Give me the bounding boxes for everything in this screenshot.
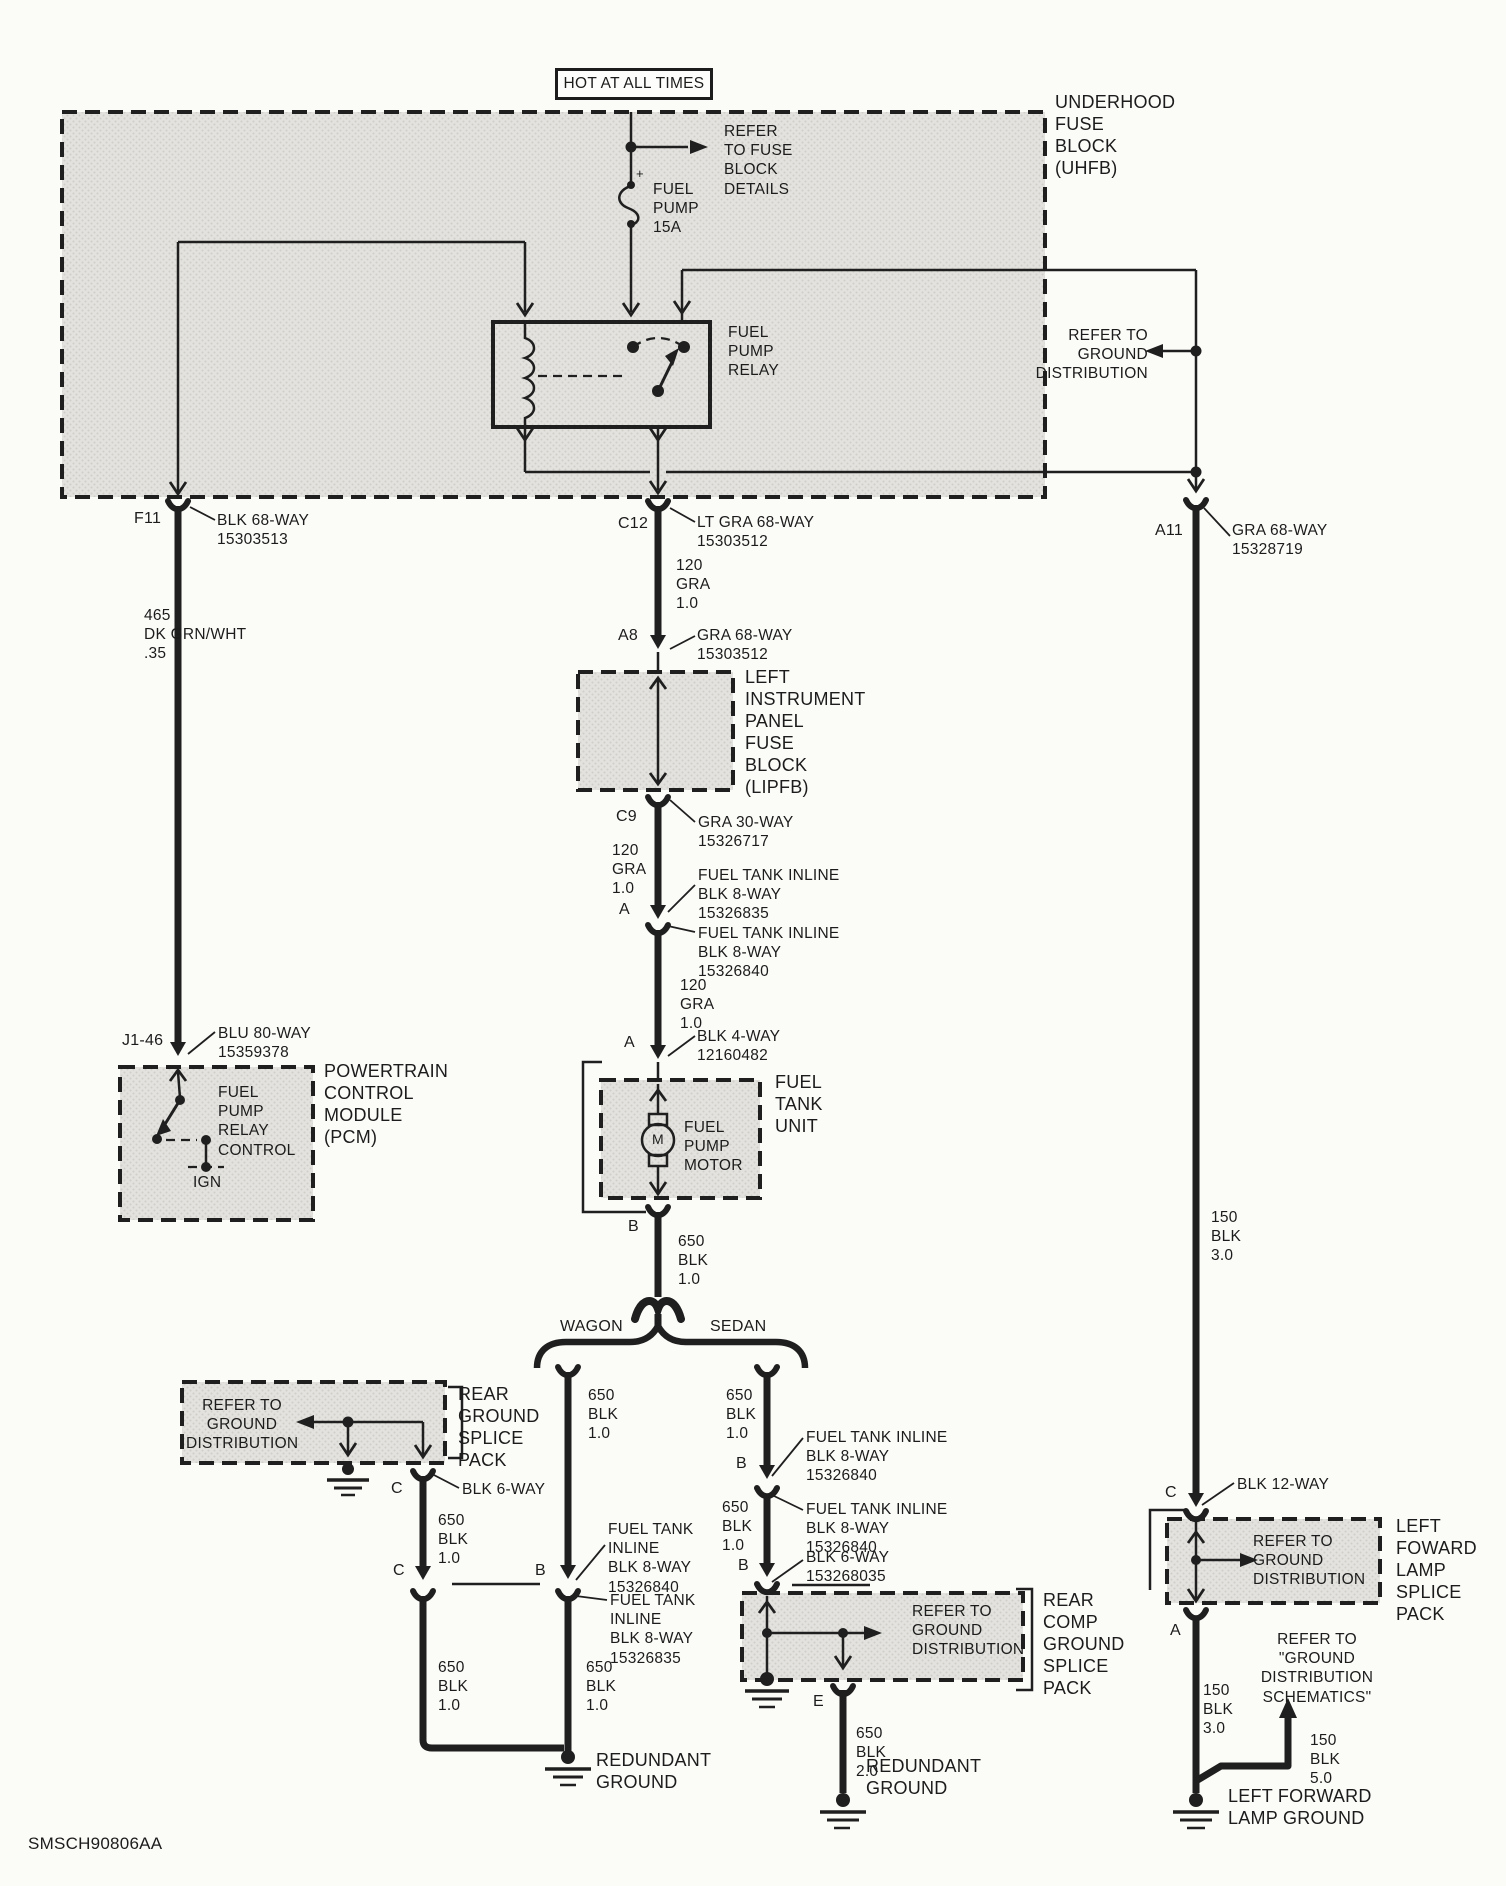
fuel-pump-motor-label: FUEL PUMP MOTOR: [684, 1118, 743, 1176]
fuse-plus-sign: +: [636, 166, 644, 181]
c12-pin-label: C12: [618, 515, 648, 533]
wire-650-blk-label-1: 650 BLK 1.0: [678, 1232, 708, 1290]
c9-pin-label: C9: [616, 808, 637, 826]
c-pin-label-1: C: [391, 1480, 403, 1498]
left-foward-lamp-splice-pack-title: LEFT FOWARD LAMP SPLICE PACK: [1396, 1516, 1477, 1626]
wire-465-dk-grn-wht-label: 465 DK GRN/WHT .35: [144, 606, 246, 664]
rear-comp-ground-splice-pack-title: REAR COMP GROUND SPLICE PACK: [1043, 1590, 1125, 1700]
wiring-diagram-page: HOT AT ALL TIMES REFER TO FUSE BLOCK DET…: [0, 0, 1506, 1886]
wire-120-gra-label-3: 120 GRA 1.0: [680, 976, 714, 1034]
motor-m-glyph: M: [650, 1131, 666, 1147]
rgsp-refer-to-ground-label: REFER TO GROUND DISTRIBUTION: [186, 1396, 298, 1454]
e-pin-label: E: [813, 1693, 824, 1711]
rear-ground-splice-pack-title: REAR GROUND SPLICE PACK: [458, 1384, 540, 1472]
j1-46-connector-label: BLU 80-WAY 15359378: [218, 1024, 311, 1062]
wagon-redundant-ground-label: REDUNDANT GROUND: [596, 1750, 711, 1794]
a-pin-label-2: A: [624, 1034, 635, 1052]
a8-pin-label: A8: [618, 627, 638, 645]
wire-120-gra-label-2: 120 GRA 1.0: [612, 841, 646, 899]
f11-pin-label: F11: [134, 510, 161, 528]
wagon-wire-650-label-4: 650 BLK 1.0: [586, 1658, 616, 1716]
f11-connector-label: BLK 68-WAY 15303513: [217, 511, 309, 549]
fuel-tank-inline-15326840-label: FUEL TANK INLINE BLK 8-WAY 15326840: [698, 924, 840, 982]
wagon-inline-15326840-label: FUEL TANK INLINE BLK 8-WAY 15326840: [608, 1520, 694, 1597]
c9-connector-label: GRA 30-WAY 15326717: [698, 813, 794, 851]
wire-150-blk-5-label: 150 BLK 5.0: [1310, 1731, 1340, 1789]
fuel-tank-unit-title: FUEL TANK UNIT: [775, 1072, 823, 1138]
fuel-pump-fuse-label: FUEL PUMP 15A: [653, 180, 699, 238]
a11-pin-label: A11: [1155, 522, 1183, 540]
a-pin-label-1: A: [619, 901, 630, 919]
wagon-wire-650-label-2: 650 BLK 1.0: [438, 1511, 468, 1569]
blk-6-way-connector-label: BLK 6-WAY: [462, 1480, 545, 1499]
left-forward-lamp-ground-label: LEFT FORWARD LAMP GROUND: [1228, 1786, 1372, 1830]
fuel-pump-relay-control-label: FUEL PUMP RELAY CONTROL: [218, 1083, 296, 1160]
left-ip-fuse-block-box: [578, 672, 733, 790]
rcgsp-refer-to-ground-label: REFER TO GROUND DISTRIBUTION: [912, 1602, 1024, 1660]
wagon-wire-650-label-3: 650 BLK 1.0: [438, 1658, 468, 1716]
c-pin-label-2: C: [393, 1562, 405, 1580]
wagon-branch-label: WAGON: [560, 1318, 623, 1336]
fuel-tank-inline-15326835-label: FUEL TANK INLINE BLK 8-WAY 15326835: [698, 866, 840, 924]
b-pin-label-3: B: [736, 1455, 747, 1473]
sedan-branch-label: SEDAN: [710, 1318, 766, 1336]
wire-150-blk-label-2: 150 BLK 3.0: [1203, 1681, 1233, 1739]
ign-label: IGN: [193, 1173, 221, 1192]
b-pin-label-4: B: [738, 1557, 749, 1575]
wagon-wire-650-label-1: 650 BLK 1.0: [588, 1386, 618, 1444]
blk-4-way-connector-label: BLK 4-WAY 12160482: [697, 1027, 780, 1065]
underhood-fuse-block-box: [62, 112, 1045, 497]
lflsp-refer-to-ground-label: REFER TO GROUND DISTRIBUTION: [1253, 1532, 1365, 1590]
underhood-fuse-block-title: UNDERHOOD FUSE BLOCK (UHFB): [1055, 92, 1175, 180]
uhfb-refer-to-ground-distribution-label: REFER TO GROUND DISTRIBUTION: [986, 326, 1148, 384]
sedan-wire-650-label-2: 650 BLK 1.0: [722, 1498, 752, 1556]
c-pin-label-3: C: [1165, 1484, 1177, 1502]
schematic-id: SMSCH90806AA: [28, 1834, 162, 1854]
a11-connector-label: GRA 68-WAY 15328719: [1232, 521, 1328, 559]
hot-at-all-times-banner: HOT AT ALL TIMES: [555, 68, 713, 100]
fuel-pump-relay-label: FUEL PUMP RELAY: [728, 323, 779, 381]
refer-ground-distribution-schematics-label: REFER TO "GROUND DISTRIBUTION SCHEMATICS…: [1242, 1630, 1392, 1707]
refer-to-fuse-block-details-label: REFER TO FUSE BLOCK DETAILS: [724, 122, 793, 199]
wagon-inline-15326835-label: FUEL TANK INLINE BLK 8-WAY 15326835: [610, 1591, 696, 1668]
blk-12-way-connector-label: BLK 12-WAY: [1237, 1475, 1329, 1494]
wire-150-blk-label-1: 150 BLK 3.0: [1211, 1208, 1241, 1266]
b-pin-label-1: B: [628, 1218, 639, 1236]
pcm-title: POWERTRAIN CONTROL MODULE (PCM): [324, 1061, 448, 1149]
c12-connector-label: LT GRA 68-WAY 15303512: [697, 513, 814, 551]
a8-connector-label: GRA 68-WAY 15303512: [697, 626, 793, 664]
b-pin-label-2: B: [535, 1562, 546, 1580]
sedan-redundant-ground-label: REDUNDANT GROUND: [866, 1756, 981, 1800]
j1-46-pin-label: J1-46: [122, 1032, 163, 1050]
sedan-blk-6-way-label: BLK 6-WAY 153268035: [806, 1548, 889, 1586]
sedan-wire-650-label-1: 650 BLK 1.0: [726, 1386, 756, 1444]
wire-120-gra-label-1: 120 GRA 1.0: [676, 556, 710, 614]
lipfb-title: LEFT INSTRUMENT PANEL FUSE BLOCK (LIPFB): [745, 667, 866, 799]
sedan-inline-15326840-label-1: FUEL TANK INLINE BLK 8-WAY 15326840: [806, 1428, 948, 1486]
a-pin-label-3: A: [1170, 1622, 1181, 1640]
